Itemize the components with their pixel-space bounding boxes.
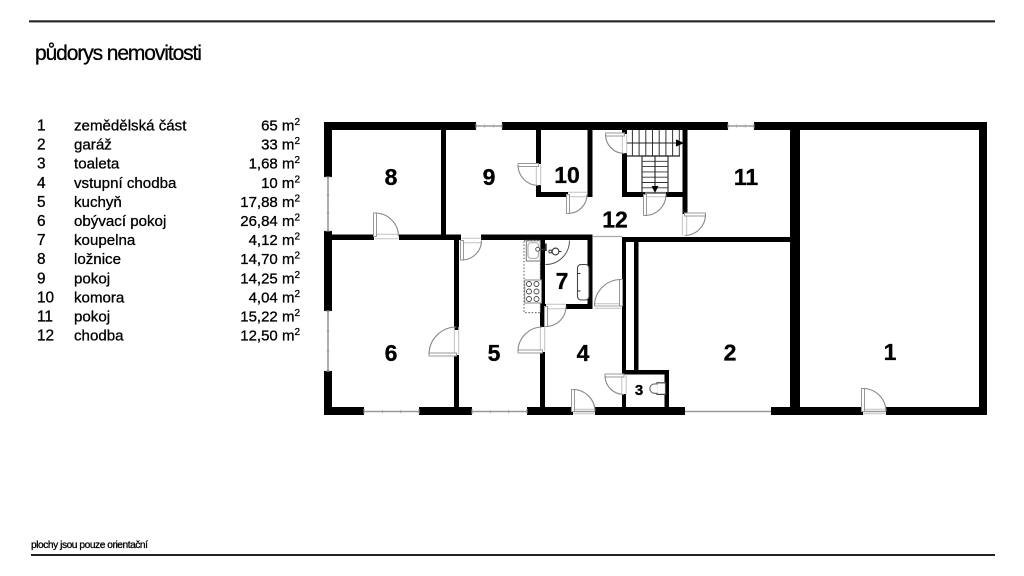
svg-text:1: 1 — [37, 118, 46, 135]
svg-text:4: 4 — [37, 175, 46, 192]
svg-text:26,84 m2: 26,84 m2 — [240, 213, 300, 231]
svg-text:11: 11 — [734, 164, 759, 190]
svg-text:12,50 m2: 12,50 m2 — [240, 327, 300, 345]
svg-text:4: 4 — [577, 340, 590, 366]
svg-text:ložnice: ložnice — [74, 251, 121, 268]
svg-text:5: 5 — [37, 194, 46, 211]
svg-text:2: 2 — [37, 137, 46, 154]
svg-text:obývací pokoj: obývací pokoj — [74, 213, 166, 230]
svg-text:toaleta: toaleta — [74, 156, 120, 173]
svg-text:3: 3 — [635, 382, 643, 399]
svg-text:12: 12 — [37, 328, 54, 345]
svg-text:10: 10 — [554, 162, 580, 188]
svg-text:9: 9 — [483, 164, 496, 190]
svg-text:5: 5 — [488, 340, 501, 366]
svg-text:zemědělská část: zemědělská část — [74, 118, 187, 135]
svg-text:4,04 m2: 4,04 m2 — [249, 289, 301, 307]
svg-text:7: 7 — [556, 268, 569, 294]
svg-text:7: 7 — [37, 232, 46, 249]
svg-text:kuchyň: kuchyň — [74, 194, 122, 211]
svg-text:3: 3 — [37, 156, 46, 173]
svg-text:11: 11 — [37, 309, 53, 326]
svg-text:pokoj: pokoj — [74, 270, 110, 287]
svg-text:12: 12 — [602, 207, 628, 233]
svg-text:6: 6 — [37, 213, 46, 230]
svg-text:17,88 m2: 17,88 m2 — [240, 193, 300, 211]
svg-text:14,70 m2: 14,70 m2 — [240, 251, 300, 269]
svg-text:koupelna: koupelna — [74, 232, 136, 249]
svg-text:4,12 m2: 4,12 m2 — [249, 232, 301, 250]
svg-text:6: 6 — [385, 340, 398, 366]
svg-text:pokoj: pokoj — [74, 309, 110, 326]
svg-text:1: 1 — [884, 339, 897, 365]
svg-text:10: 10 — [37, 289, 54, 306]
svg-text:2: 2 — [724, 340, 737, 366]
svg-text:půdorys nemovitosti: půdorys nemovitosti — [35, 42, 201, 65]
svg-text:9: 9 — [37, 270, 46, 287]
svg-text:chodba: chodba — [74, 328, 124, 345]
svg-text:vstupní chodba: vstupní chodba — [74, 175, 177, 192]
svg-text:komora: komora — [74, 289, 125, 306]
svg-text:14,25 m2: 14,25 m2 — [240, 270, 300, 288]
svg-text:15,22 m2: 15,22 m2 — [240, 308, 300, 326]
svg-text:1,68 m2: 1,68 m2 — [249, 155, 301, 173]
svg-text:8: 8 — [385, 164, 398, 190]
svg-text:plochy jsou pouze orientační: plochy jsou pouze orientační — [31, 540, 148, 551]
svg-text:8: 8 — [37, 251, 46, 268]
svg-text:garáž: garáž — [74, 137, 112, 154]
